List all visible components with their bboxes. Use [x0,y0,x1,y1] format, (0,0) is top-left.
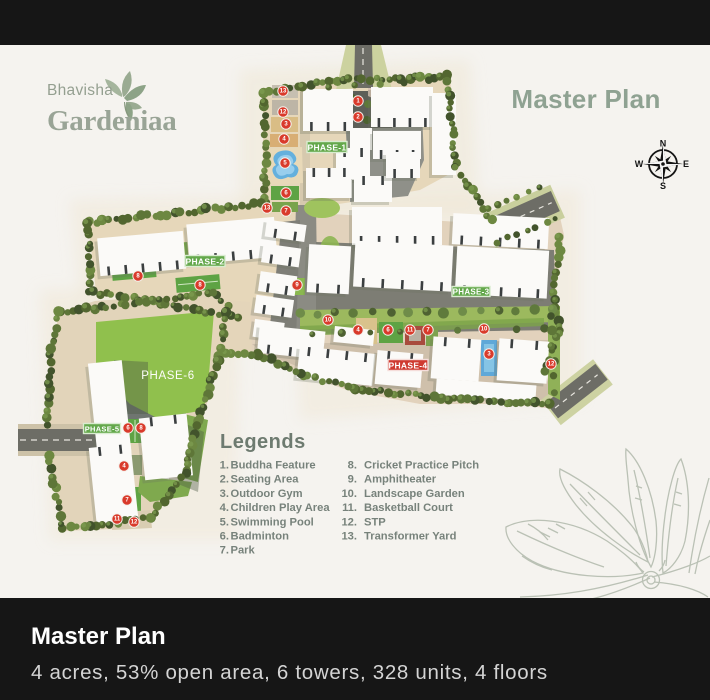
svg-text:PHASE-1: PHASE-1 [308,143,347,153]
svg-text:6.: 6. [220,531,229,543]
svg-text:12: 12 [548,362,555,368]
svg-text:Master Plan: Master Plan [511,84,660,114]
svg-text:Master Plan: Master Plan [31,623,166,650]
svg-text:12: 12 [280,110,287,116]
svg-text:Transformer Yard: Transformer Yard [364,531,457,543]
svg-text:Park: Park [231,545,256,557]
svg-text:13: 13 [280,89,287,95]
svg-text:N: N [660,139,667,149]
svg-text:1.: 1. [220,460,229,472]
svg-text:Landscape Garden: Landscape Garden [364,488,465,500]
svg-text:11: 11 [114,517,121,523]
svg-text:Badminton: Badminton [231,531,290,543]
svg-text:Gardeniaa: Gardeniaa [47,105,177,137]
svg-text:10.: 10. [341,488,357,500]
svg-text:5.: 5. [220,516,229,528]
svg-text:10: 10 [481,327,488,333]
svg-text:PHASE-4: PHASE-4 [389,361,428,371]
svg-text:STP: STP [364,516,386,528]
svg-text:Seating Area: Seating Area [231,474,300,486]
svg-text:Legends: Legends [220,431,306,453]
svg-text:Bhavisha: Bhavisha [47,82,113,99]
svg-text:Children Play Area: Children Play Area [231,502,331,514]
svg-text:9.: 9. [348,474,357,486]
svg-text:13: 13 [264,206,271,212]
svg-text:12.: 12. [341,516,357,528]
svg-text:3.: 3. [220,488,229,500]
svg-text:10: 10 [325,318,332,324]
svg-text:PHASE-5: PHASE-5 [85,425,120,434]
svg-text:W: W [635,159,644,169]
svg-text:4 acres, 53% open area, 6 towe: 4 acres, 53% open area, 6 towers, 328 un… [31,661,548,684]
svg-text:Amphitheater: Amphitheater [364,474,437,486]
svg-text:8.: 8. [348,460,357,472]
svg-text:Outdoor Gym: Outdoor Gym [231,488,303,500]
svg-text:Basketball Court: Basketball Court [364,502,453,514]
svg-text:PHASE-3: PHASE-3 [453,288,490,297]
svg-text:2.: 2. [220,474,229,486]
svg-text:12: 12 [131,520,138,526]
svg-text:PHASE-6: PHASE-6 [141,370,194,382]
svg-text:11: 11 [407,328,414,334]
svg-text:7.: 7. [220,545,229,557]
svg-text:13.: 13. [341,531,357,543]
svg-text:S: S [660,181,666,191]
svg-text:Swimming Pool: Swimming Pool [231,516,314,528]
svg-text:Cricket Practice Pitch: Cricket Practice Pitch [364,460,479,472]
svg-text:E: E [683,159,689,169]
svg-text:11.: 11. [342,502,357,514]
svg-text:4.: 4. [220,502,229,514]
svg-text:PHASE-2: PHASE-2 [186,257,225,267]
svg-text:Buddha Feature: Buddha Feature [231,460,316,472]
